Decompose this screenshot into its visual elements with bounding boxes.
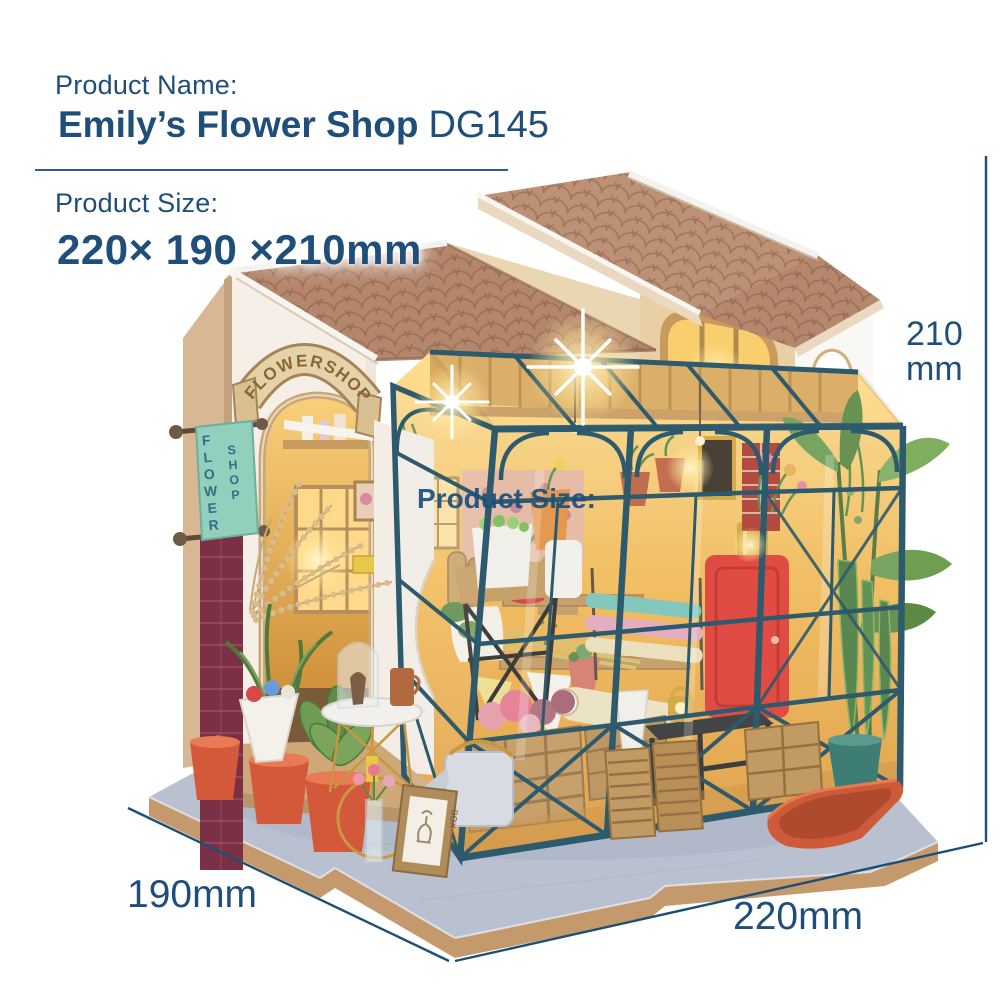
product-size-value: 220× 190 ×210mm	[57, 226, 422, 274]
width-dimension-label: 220mm	[733, 895, 863, 939]
divider-line	[35, 169, 508, 171]
product-title-row: Emily’s Flower Shop DG145	[58, 104, 549, 147]
depth-dimension-label: 190mm	[127, 873, 257, 917]
orange-pot-curly-grass	[190, 736, 240, 800]
height-unit: mm	[906, 352, 963, 387]
product-name-label: Product Name:	[55, 70, 238, 101]
height-value: 210	[906, 317, 963, 352]
product-title: Emily’s Flower Shop	[58, 104, 418, 146]
height-dimension-label: 210 mm	[906, 317, 963, 386]
wooden-crate	[745, 722, 822, 800]
watermark-text: Product Size:	[417, 483, 596, 515]
product-size-label: Product Size:	[55, 188, 218, 219]
product-code: DG145	[428, 104, 548, 147]
brick-column	[200, 535, 243, 870]
product-infographic: FLOWERSHOP	[0, 0, 1000, 1000]
